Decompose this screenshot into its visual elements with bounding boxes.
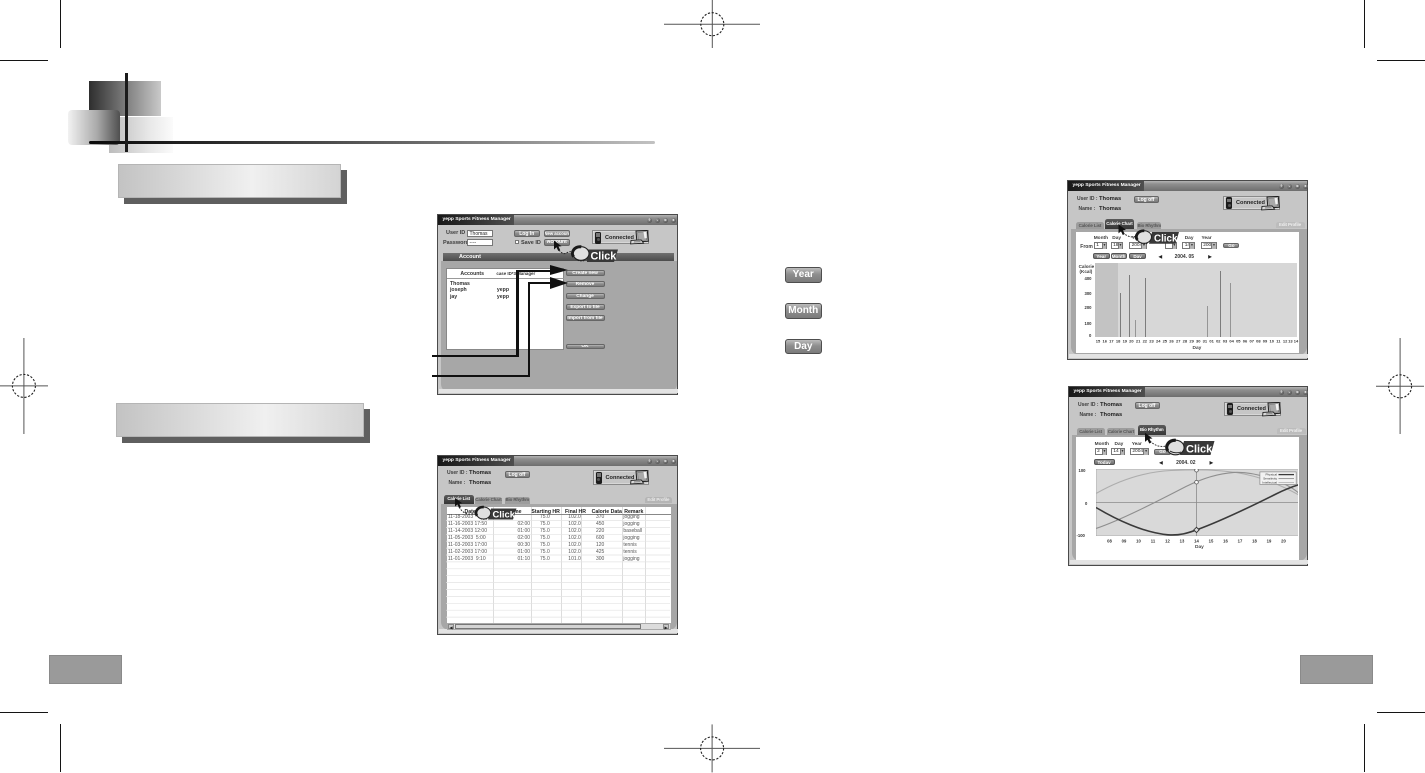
svg-text:28: 28 <box>1182 339 1187 344</box>
svg-text:14: 14 <box>1194 538 1199 543</box>
svg-text:Click: Click <box>591 250 618 262</box>
svg-text:Click: Click <box>1186 443 1213 455</box>
svg-text:17: 17 <box>1109 339 1114 344</box>
svg-text:04: 04 <box>1229 339 1234 344</box>
svg-text:01: 01 <box>1209 339 1214 344</box>
svg-text:Click: Click <box>493 508 516 519</box>
svg-text:23: 23 <box>1149 339 1154 344</box>
svg-text:09: 09 <box>1262 339 1267 344</box>
svg-text:11: 11 <box>1276 339 1281 344</box>
svg-text:11: 11 <box>1150 538 1155 543</box>
svg-text:26: 26 <box>1169 339 1174 344</box>
svg-text:22: 22 <box>1142 339 1147 344</box>
svg-text:18: 18 <box>1115 339 1120 344</box>
svg-text:13: 13 <box>1179 538 1184 543</box>
svg-text:12: 12 <box>1165 538 1170 543</box>
svg-text:31: 31 <box>1202 339 1207 344</box>
svg-text:20: 20 <box>1281 538 1286 543</box>
svg-text:02: 02 <box>1216 339 1221 344</box>
svg-text:14: 14 <box>1293 339 1298 344</box>
svg-text:06: 06 <box>1242 339 1247 344</box>
svg-text:21: 21 <box>1135 339 1140 344</box>
svg-text:Intellectual: Intellectual <box>1262 481 1277 485</box>
svg-text:29: 29 <box>1189 339 1194 344</box>
svg-text:10: 10 <box>1136 538 1141 543</box>
svg-text:08: 08 <box>1256 339 1261 344</box>
svg-text:27: 27 <box>1176 339 1181 344</box>
svg-text:19: 19 <box>1122 339 1127 344</box>
svg-text:15: 15 <box>1208 538 1213 543</box>
svg-text:03: 03 <box>1222 339 1227 344</box>
svg-text:05: 05 <box>1236 339 1241 344</box>
svg-text:25: 25 <box>1162 339 1167 344</box>
svg-text:18: 18 <box>1252 538 1257 543</box>
svg-text:24: 24 <box>1156 339 1161 344</box>
svg-text:15: 15 <box>1095 339 1100 344</box>
svg-text:19: 19 <box>1266 538 1271 543</box>
svg-text:16: 16 <box>1223 538 1228 543</box>
svg-text:13: 13 <box>1288 339 1293 344</box>
svg-text:20: 20 <box>1129 339 1134 344</box>
svg-text:07: 07 <box>1249 339 1254 344</box>
svg-text:10: 10 <box>1269 339 1274 344</box>
svg-text:09: 09 <box>1121 538 1126 543</box>
svg-text:16: 16 <box>1102 339 1107 344</box>
svg-text:Click: Click <box>1154 233 1178 244</box>
svg-text:30: 30 <box>1196 339 1201 344</box>
svg-text:08: 08 <box>1107 538 1112 543</box>
svg-text:17: 17 <box>1237 538 1242 543</box>
